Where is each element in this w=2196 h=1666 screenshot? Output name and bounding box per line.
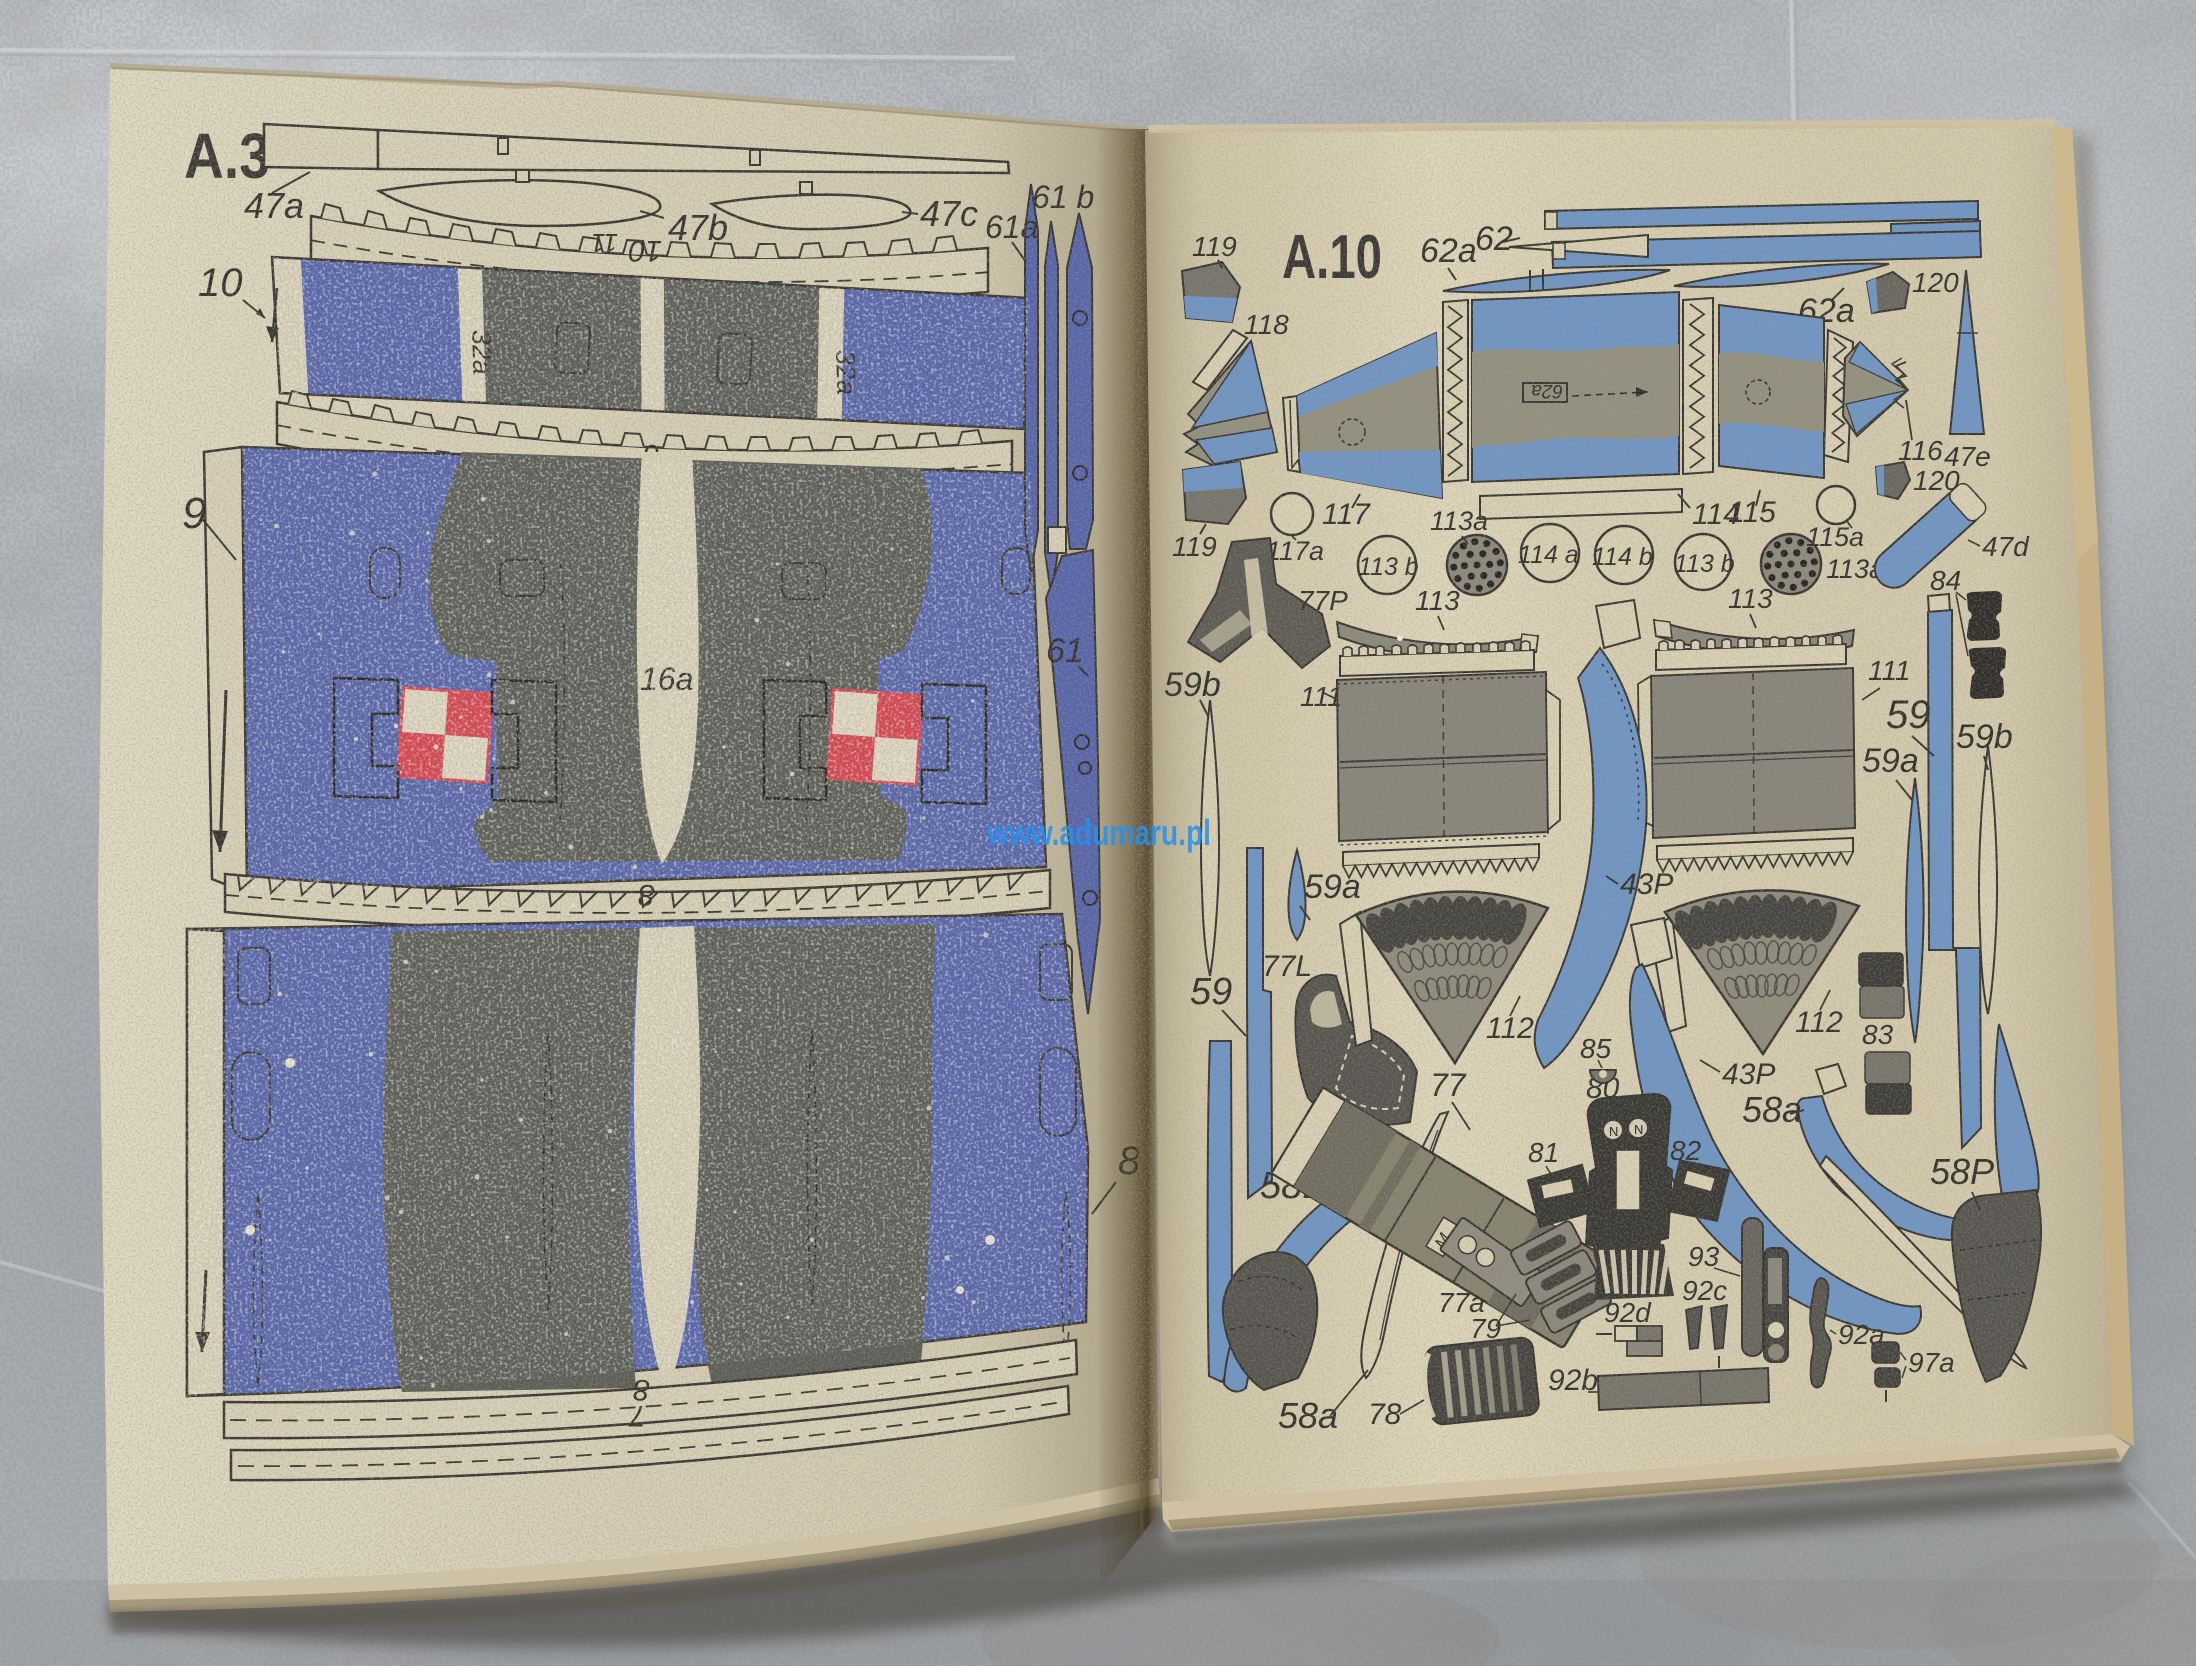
svg-text:www.adumaru.pl: www.adumaru.pl [986, 812, 1211, 853]
